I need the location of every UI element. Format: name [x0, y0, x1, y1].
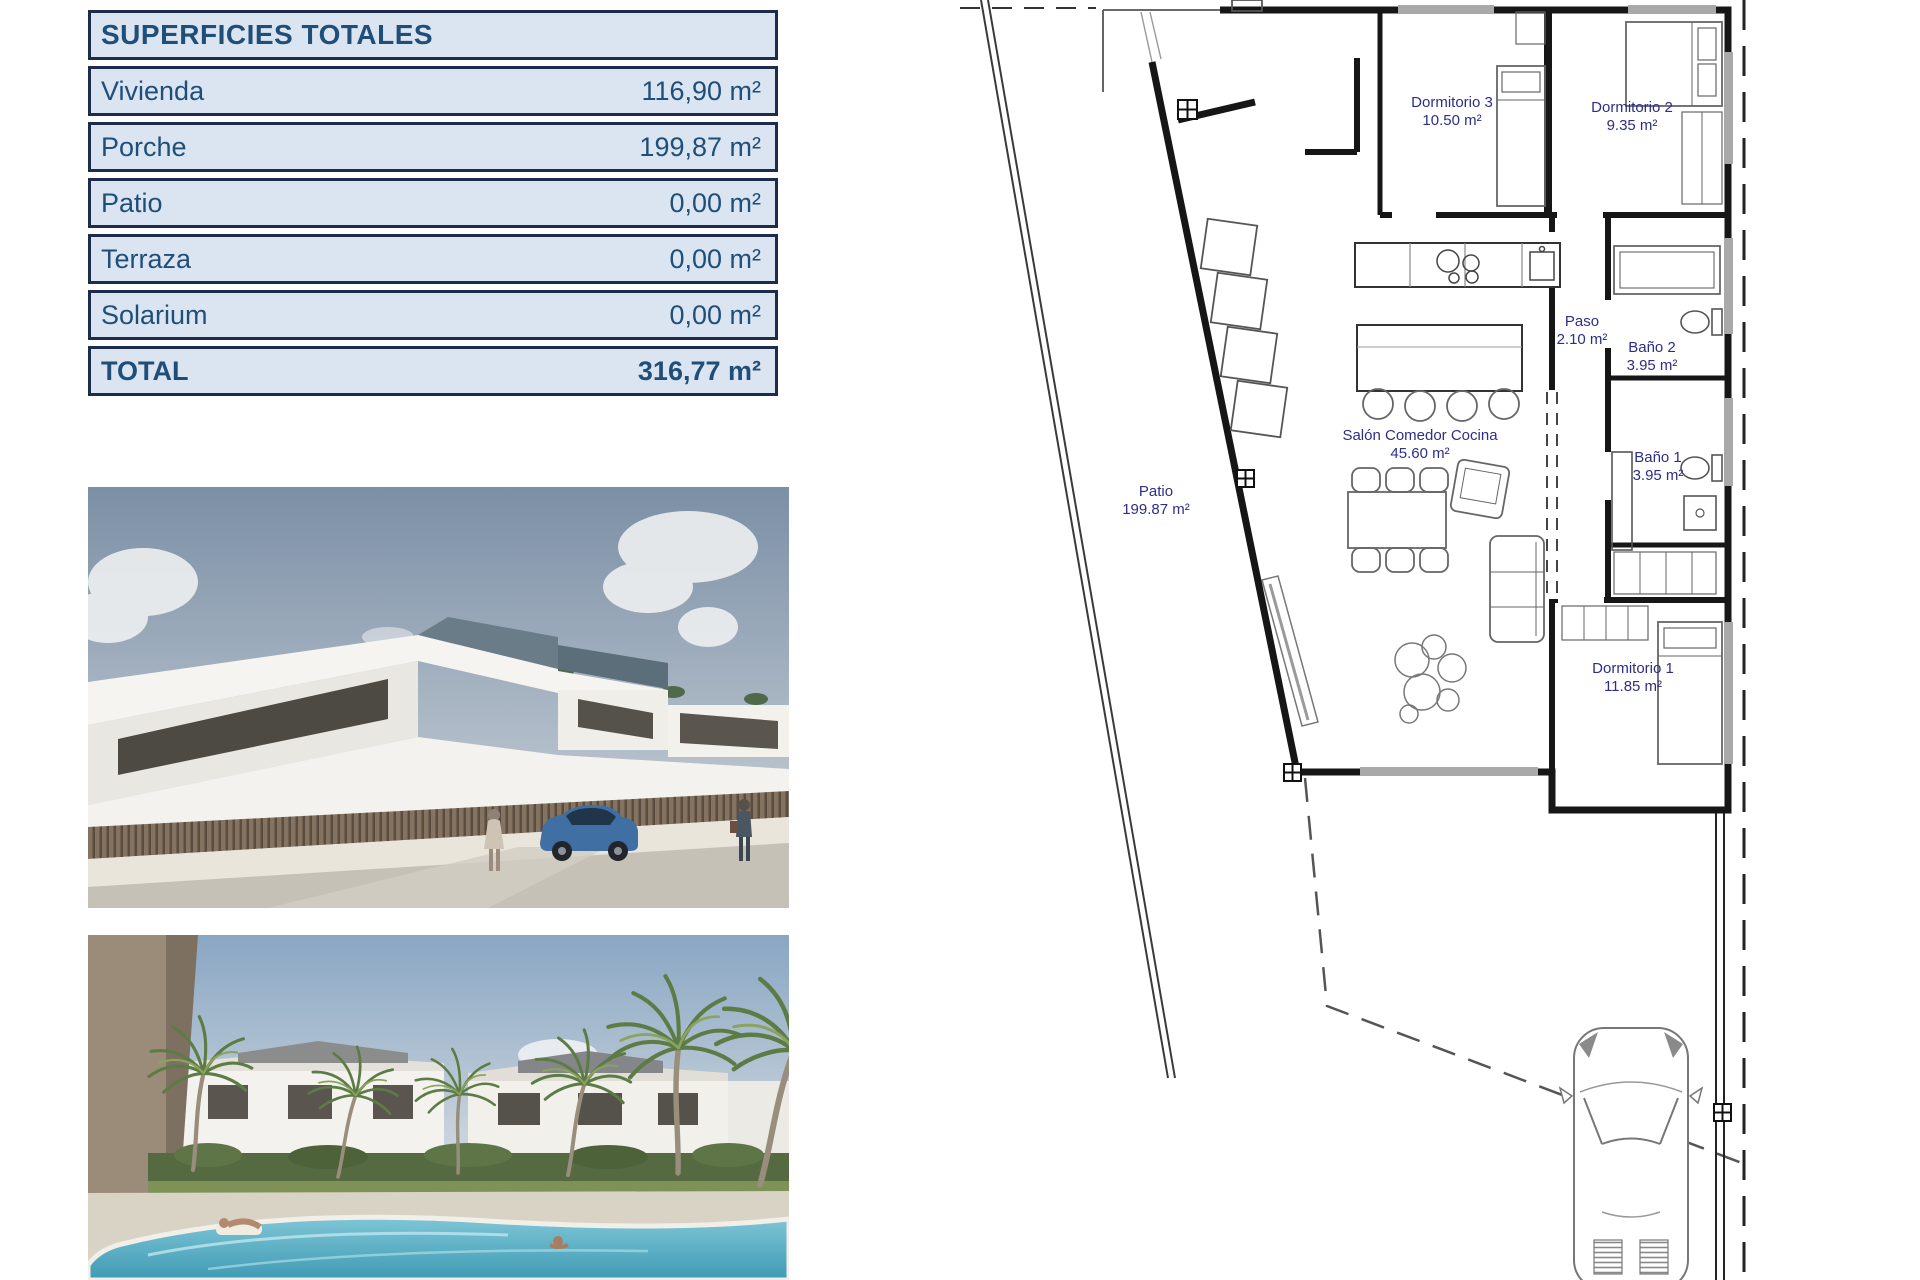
row-value: 199,87 m² [639, 132, 761, 163]
room-area-salon: 45.60 m² [1390, 445, 1449, 462]
row-value: 0,00 m² [669, 244, 761, 275]
toilet-icon [1681, 457, 1709, 479]
room-area-bano-1: 3.95 m² [1633, 467, 1684, 484]
bar-stools [1363, 389, 1519, 421]
room-area-paso: 2.10 m² [1557, 331, 1608, 348]
row-value: 0,00 m² [669, 188, 761, 219]
armchair [1450, 459, 1510, 519]
table-row: Vivienda 116,90 m² [88, 66, 778, 116]
table-header: SUPERFICIES TOTALES [88, 10, 778, 60]
lounge [1395, 459, 1544, 723]
row-value: 116,90 m² [641, 76, 761, 107]
dining-set [1348, 468, 1448, 572]
table-row: Porche 199,87 m² [88, 122, 778, 172]
room-label-patio: Patio [1139, 483, 1173, 500]
floor-plan: Dormitorio 3 10.50 m² Dormitorio 2 9.35 … [800, 0, 1920, 1280]
room-label-dormitorio-3: Dormitorio 3 [1411, 94, 1493, 111]
room-area-dormitorio-3: 10.50 m² [1422, 112, 1481, 129]
kitchen [1355, 243, 1560, 421]
room-label-dormitorio-1: Dormitorio 1 [1592, 660, 1674, 677]
row-value: 0,00 m² [669, 300, 761, 331]
room-label-bano-2: Baño 2 [1628, 339, 1676, 356]
total-label: TOTAL [101, 356, 189, 387]
room-area-patio: 199.87 m² [1122, 501, 1190, 518]
room-label-bano-1: Baño 1 [1634, 449, 1682, 466]
toilet-icon [1681, 311, 1709, 333]
table-row: Solarium 0,00 m² [88, 290, 778, 340]
row-label: Solarium [101, 300, 208, 331]
plants-icon [1395, 635, 1466, 723]
total-value: 316,77 m² [638, 356, 761, 387]
bathroom2-fixtures [1614, 246, 1722, 335]
basin-icon [1684, 496, 1716, 530]
photo-pool-render [88, 935, 789, 1280]
plan-sheet: SUPERFICIES TOTALES Vivienda 116,90 m² P… [0, 0, 1920, 1280]
room-label-salon: Salón Comedor Cocina [1342, 427, 1498, 444]
bedroom3-furniture [1497, 12, 1545, 206]
row-label: Vivienda [101, 76, 204, 107]
hall-wardrobe [1614, 552, 1716, 594]
table-total-row: TOTAL 316,77 m² [88, 346, 778, 396]
kitchen-island [1357, 325, 1522, 391]
room-label-dormitorio-2: Dormitorio 2 [1591, 99, 1673, 116]
row-label: Porche [101, 132, 187, 163]
photo-exterior-render [88, 487, 789, 908]
table-row: Terraza 0,00 m² [88, 234, 778, 284]
row-label: Patio [101, 188, 163, 219]
room-label-paso: Paso [1565, 313, 1599, 330]
row-label: Terraza [101, 244, 191, 275]
table-row: Patio 0,00 m² [88, 178, 778, 228]
room-area-bano-2: 3.95 m² [1627, 357, 1678, 374]
superficies-table: SUPERFICIES TOTALES Vivienda 116,90 m² P… [88, 10, 778, 396]
room-area-dormitorio-2: 9.35 m² [1607, 117, 1658, 134]
car-icon [1560, 1028, 1702, 1280]
room-area-dormitorio-1: 11.85 m² [1604, 678, 1662, 695]
table-title: SUPERFICIES TOTALES [101, 19, 433, 51]
